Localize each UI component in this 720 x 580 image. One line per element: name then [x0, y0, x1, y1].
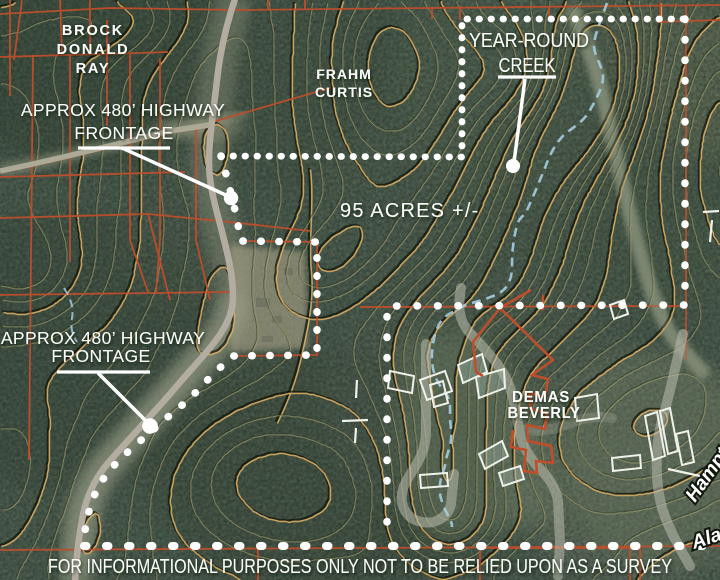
svg-text:FRONTAGE: FRONTAGE: [74, 123, 173, 143]
svg-text:BEVERLY: BEVERLY: [508, 405, 581, 422]
svg-text:CREEK: CREEK: [499, 54, 556, 77]
svg-text:DONALD: DONALD: [57, 42, 130, 58]
svg-text:DEMAS: DEMAS: [512, 389, 570, 406]
svg-text:CURTIS: CURTIS: [315, 84, 373, 100]
svg-text:FRONTAGE: FRONTAGE: [51, 346, 150, 366]
svg-text:RAY: RAY: [76, 61, 111, 77]
svg-text:APPROX 480’ HIGHWAY: APPROX 480’ HIGHWAY: [1, 328, 205, 348]
svg-text:FOR INFORMATIONAL PURPOSES ONL: FOR INFORMATIONAL PURPOSES ONLY NOT TO B…: [48, 556, 672, 578]
svg-text:BROCK: BROCK: [62, 23, 124, 39]
svg-text:95 ACRES +/-: 95 ACRES +/-: [340, 200, 479, 222]
svg-text:YEAR-ROUND: YEAR-ROUND: [469, 29, 589, 52]
svg-text:APPROX 480’ HIGHWAY: APPROX 480’ HIGHWAY: [21, 100, 225, 120]
svg-text:FRAHM: FRAHM: [316, 66, 372, 82]
